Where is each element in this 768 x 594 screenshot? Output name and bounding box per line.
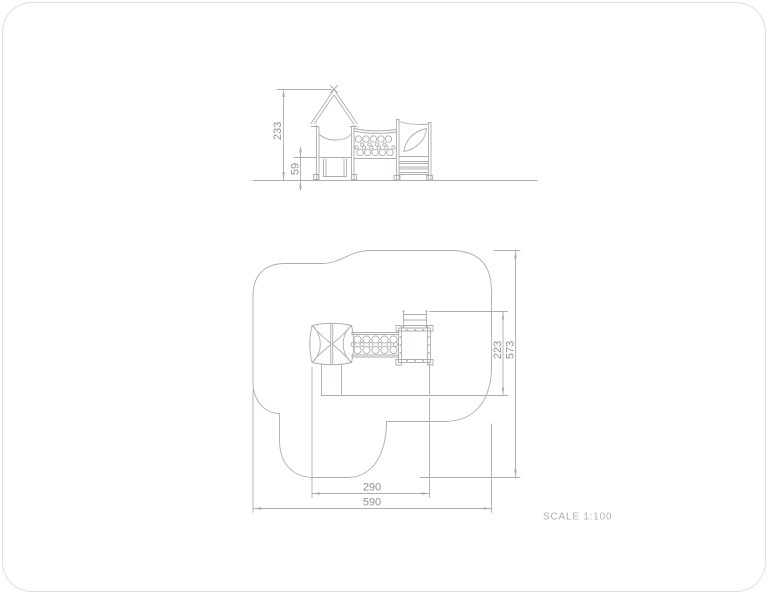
dim-290-label: 290 <box>363 482 381 494</box>
safety-area-outline <box>253 251 492 478</box>
net-climber-elevation <box>354 129 396 159</box>
ladder-unit-elevation <box>394 120 433 181</box>
net-climber-plan <box>351 333 399 358</box>
dimension-deck-height: 59 <box>290 147 317 191</box>
roof-plan <box>310 323 354 365</box>
climb-panel <box>404 129 427 152</box>
scale-label: SCALE 1:100 <box>543 512 612 523</box>
dimension-safety-width: 590 <box>253 390 492 513</box>
technical-drawing: 233 59 <box>0 0 768 594</box>
dim-573-label: 573 <box>505 341 517 359</box>
elevation-view: 233 59 <box>253 86 537 191</box>
tower-elevation <box>311 86 357 180</box>
dimension-safety-depth: 573 <box>420 251 520 478</box>
dimension-total-height: 233 <box>272 89 331 180</box>
ladder-plan <box>403 311 428 328</box>
dim-223-label: 223 <box>492 341 504 359</box>
dim-590-label: 590 <box>363 497 381 509</box>
plan-view: 223 573 290 <box>253 251 520 513</box>
tower-base-plan <box>322 363 508 396</box>
platform-plan <box>396 326 433 366</box>
roof-finial-icon <box>331 86 338 93</box>
dim-59-label: 59 <box>290 163 302 175</box>
dimension-equipment-depth: 223 <box>430 312 508 396</box>
dim-233-label: 233 <box>272 122 284 140</box>
fixing-dots <box>399 329 429 362</box>
